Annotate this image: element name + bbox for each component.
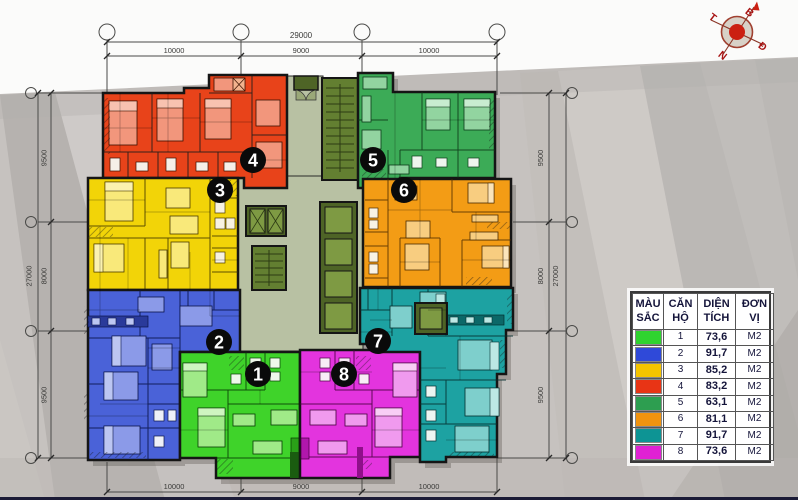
svg-text:9000: 9000	[293, 46, 310, 55]
svg-text:4: 4	[248, 151, 258, 171]
svg-text:2: 2	[214, 333, 224, 353]
svg-text:27000: 27000	[25, 266, 34, 287]
svg-text:7: 7	[373, 332, 383, 352]
svg-text:10000: 10000	[164, 46, 185, 55]
svg-text:10000: 10000	[419, 482, 440, 491]
svg-text:8: 8	[339, 365, 349, 385]
svg-text:3: 3	[215, 181, 225, 201]
svg-text:29000: 29000	[290, 31, 313, 40]
svg-text:9500: 9500	[536, 387, 545, 404]
svg-text:8000: 8000	[536, 268, 545, 285]
svg-text:1: 1	[253, 365, 263, 385]
svg-text:9500: 9500	[40, 387, 49, 404]
svg-text:5: 5	[368, 151, 378, 171]
svg-text:8000: 8000	[40, 268, 49, 285]
svg-text:6: 6	[399, 181, 409, 201]
svg-text:10000: 10000	[419, 46, 440, 55]
svg-text:9500: 9500	[40, 150, 49, 167]
svg-text:10000: 10000	[164, 482, 185, 491]
svg-text:27000: 27000	[551, 266, 560, 287]
svg-text:9500: 9500	[536, 150, 545, 167]
